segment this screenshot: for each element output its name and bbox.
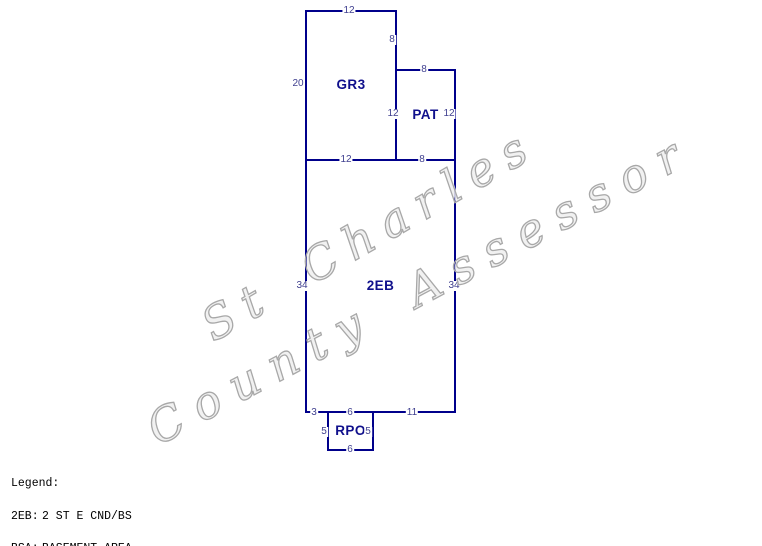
dim-pat-left: 12 bbox=[386, 109, 399, 119]
dim-gr3-right-upper: 8 bbox=[388, 35, 396, 45]
dim-pat-right: 12 bbox=[442, 109, 455, 119]
legend: Legend: 2EB:2 ST E CND/BS BSA:BASEMENT A… bbox=[11, 458, 159, 546]
dim-2eb-bottom-left: 3 bbox=[310, 408, 318, 418]
room-gr3-garage: GR3 bbox=[305, 10, 397, 161]
dim-2eb-left: 34 bbox=[295, 281, 308, 291]
dim-rpo-top: 6 bbox=[346, 408, 354, 418]
dim-2eb-right: 34 bbox=[447, 281, 460, 291]
room-label-rpo: RPO bbox=[334, 424, 366, 439]
legend-desc-2eb: 2 ST E CND/BS bbox=[42, 510, 132, 523]
legend-item-2eb: 2EB:2 ST E CND/BS bbox=[11, 512, 159, 523]
legend-desc-bsa: BASEMENT AREA bbox=[42, 542, 132, 546]
assessor-sketch-screen: GR3 PAT 2EB RPO 12 20 8 12 8 12 12 8 34 … bbox=[0, 0, 762, 546]
dim-gr3-left: 20 bbox=[291, 79, 304, 89]
room-label-2eb: 2EB bbox=[366, 279, 395, 294]
dim-rpo-bottom: 6 bbox=[346, 445, 354, 455]
dim-pat-bottom: 8 bbox=[418, 155, 426, 165]
legend-title: Legend: bbox=[11, 479, 159, 490]
dim-2eb-bottom-right: 11 bbox=[406, 408, 418, 418]
legend-abbr-2eb: 2EB: bbox=[11, 512, 42, 523]
dim-rpo-left: 5 bbox=[320, 427, 328, 437]
dim-gr3-top: 12 bbox=[342, 6, 355, 16]
room-2eb-main-structure: 2EB bbox=[305, 159, 456, 413]
dim-rpo-right: 5 bbox=[364, 427, 372, 437]
room-label-pat: PAT bbox=[411, 108, 439, 123]
dim-pat-top: 8 bbox=[420, 65, 428, 75]
room-label-gr3: GR3 bbox=[336, 78, 367, 93]
dim-gr3-bottom: 12 bbox=[339, 155, 352, 165]
